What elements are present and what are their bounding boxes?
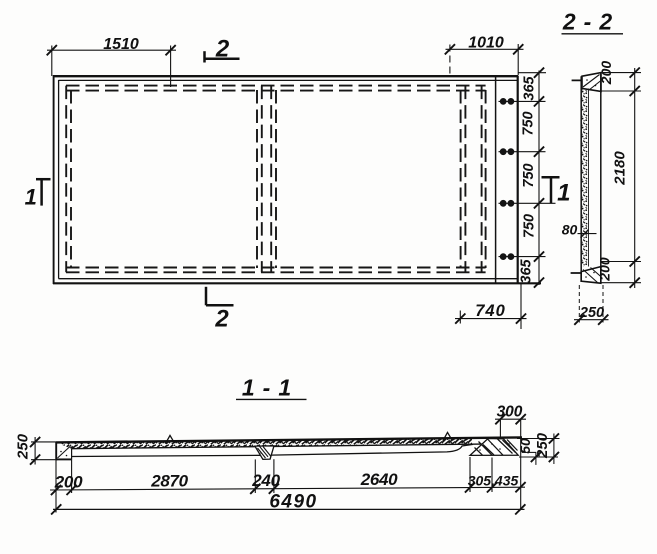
svg-text:200: 200 bbox=[597, 257, 613, 282]
svg-text:6490: 6490 bbox=[269, 492, 317, 513]
svg-text:50: 50 bbox=[517, 438, 533, 454]
svg-text:2640: 2640 bbox=[360, 470, 398, 489]
svg-text:305,435: 305,435 bbox=[468, 473, 519, 489]
svg-text:1010: 1010 bbox=[468, 35, 504, 52]
svg-text:750: 750 bbox=[521, 163, 537, 187]
svg-text:2180: 2180 bbox=[612, 151, 629, 186]
svg-text:240: 240 bbox=[251, 471, 280, 490]
svg-text:740: 740 bbox=[475, 302, 506, 320]
svg-text:200: 200 bbox=[598, 61, 614, 86]
svg-text:2: 2 bbox=[215, 36, 230, 63]
svg-text:250: 250 bbox=[579, 305, 604, 321]
svg-text:1-1: 1-1 bbox=[242, 375, 299, 401]
svg-text:250: 250 bbox=[15, 433, 32, 460]
svg-text:365: 365 bbox=[522, 75, 538, 100]
svg-text:2: 2 bbox=[214, 306, 229, 333]
svg-text:750: 750 bbox=[522, 214, 538, 238]
svg-text:365: 365 bbox=[519, 258, 535, 283]
svg-text:2870: 2870 bbox=[150, 472, 188, 491]
svg-text:1: 1 bbox=[25, 185, 37, 210]
svg-text:1510: 1510 bbox=[103, 36, 139, 53]
svg-text:750: 750 bbox=[521, 111, 537, 135]
svg-text:80: 80 bbox=[562, 222, 578, 238]
svg-text:300: 300 bbox=[497, 404, 523, 421]
svg-text:1: 1 bbox=[557, 180, 570, 207]
svg-text:250: 250 bbox=[534, 432, 551, 459]
svg-text:200: 200 bbox=[54, 473, 83, 492]
svg-text:2-2: 2-2 bbox=[562, 9, 620, 35]
